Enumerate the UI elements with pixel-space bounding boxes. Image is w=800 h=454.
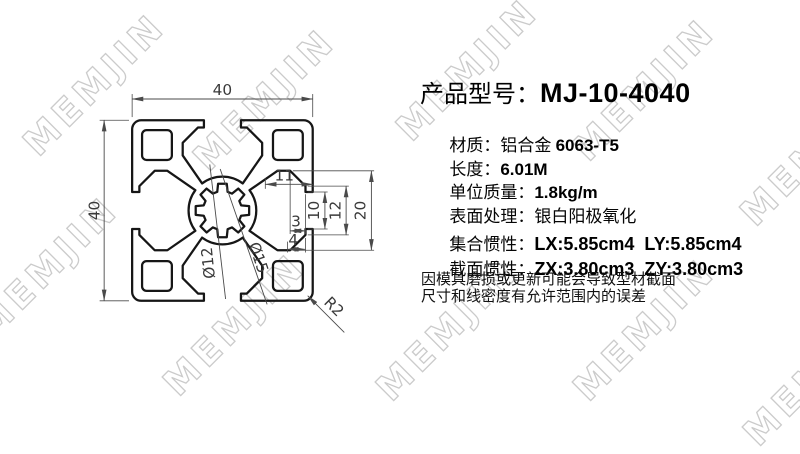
extension-lines: [100, 94, 374, 301]
spec-label: 材质：: [449, 136, 500, 155]
dimension-labels: 40 40 11 10 12 20 3 4 Ø12 Ø15 R2: [87, 81, 370, 320]
dim-hub-dia: Ø15: [245, 240, 272, 276]
spec-label: 长度：: [449, 160, 500, 179]
dim-corner-radius: R2: [320, 293, 347, 320]
spec-prefix: 铝合金: [500, 136, 555, 155]
inertia-list: 集合惯性：LX:5.85cm4 LY:5.85cm4 截面惯性：ZX:3.80c…: [421, 210, 743, 260]
corner-hole: [273, 130, 303, 160]
spec-label: 集合惯性：: [449, 235, 534, 254]
tolerance-note-line1: 因模具磨损或更新可能会导致型材截面: [421, 272, 676, 289]
spec-value: 1.8kg/m: [534, 183, 597, 202]
dim-cavity-height: 20: [352, 201, 370, 221]
product-model-label: 产品型号：: [420, 82, 540, 108]
dim-3: 3: [291, 212, 301, 230]
watermark-text: MEMJIN: [736, 296, 800, 454]
corner-holes: [142, 130, 303, 291]
dim-slot-depth: 11: [275, 166, 295, 184]
corner-hole: [142, 130, 172, 160]
tolerance-note: 因模具磨损或更新可能会导致型材截面 尺寸和线密度有允许范围内的误差: [421, 272, 676, 305]
dim-4: 4: [288, 231, 298, 249]
spec-value: 6063-T5: [556, 136, 619, 155]
corner-hole: [142, 261, 172, 291]
spec-row-material: 材质：铝合金 6063-T5: [421, 111, 636, 135]
dim-10: 10: [305, 201, 323, 221]
product-model-value: MJ-10-4040: [540, 78, 691, 108]
datasheet-page: { "watermark": { "text": "MEMJIN", "stro…: [0, 0, 800, 400]
dim-12: 12: [326, 201, 344, 221]
spec-value: 6.01M: [500, 160, 547, 179]
spec-label: 单位质量：: [449, 183, 534, 202]
dim-bore-dia: Ø12: [198, 246, 219, 279]
corner-hole: [273, 261, 303, 291]
dim-overall-width: 40: [213, 81, 233, 99]
tolerance-note-line2: 尺寸和线密度有允许范围内的误差: [421, 289, 676, 306]
product-model-row: 产品型号：MJ-10-4040: [420, 74, 691, 109]
profile-cross-section-drawing: 40 40 11 10 12 20 3 4 Ø12 Ø15 R2: [87, 57, 403, 355]
dim-overall-height: 40: [87, 201, 104, 221]
spec-value: LX:5.85cm4 LY:5.85cm4: [534, 234, 741, 254]
spec-list: 材质：铝合金 6063-T5 长度：6.01M 单位质量：1.8kg/m 表面处…: [421, 111, 636, 205]
spec-row-moment-inertia: 集合惯性：LX:5.85cm4 LY:5.85cm4: [421, 210, 743, 235]
